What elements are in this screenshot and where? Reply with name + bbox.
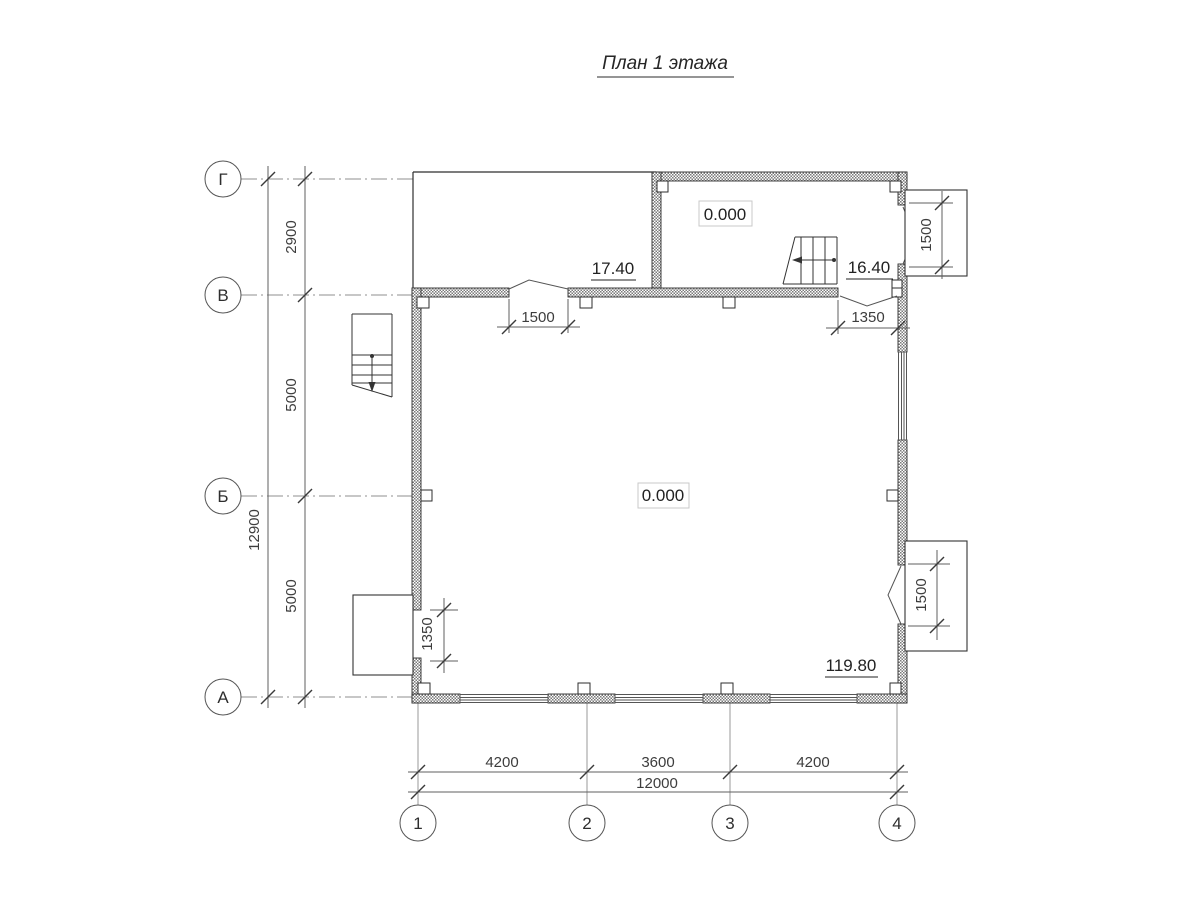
dim-text-5000-lower: 5000	[283, 579, 300, 612]
left-dimension-lines: 2900 5000 5000 12900	[246, 166, 312, 708]
row-axis-g: Г	[205, 161, 413, 197]
column-mark	[421, 490, 432, 501]
level-text: 16.40	[848, 258, 891, 277]
window-south-2	[615, 695, 703, 703]
door-axis-v-left	[509, 280, 568, 289]
column-mark	[657, 181, 668, 192]
column-mark	[890, 683, 901, 694]
dim-text-3600: 3600	[641, 754, 674, 771]
axis-label: В	[217, 286, 228, 305]
dim-text-12000: 12000	[636, 775, 678, 792]
axis-label: 1	[413, 814, 422, 833]
window-frame	[615, 695, 703, 703]
axis-label: 3	[725, 814, 734, 833]
level-label-main-room: 0.000	[638, 483, 689, 508]
level-text: 17.40	[592, 259, 635, 278]
axis-label: Б	[217, 487, 228, 506]
wall-axis-v-left	[412, 288, 509, 297]
level-label-stair: 16.40	[846, 258, 893, 279]
dim-text-12900: 12900	[246, 509, 263, 551]
column-mark	[887, 490, 898, 501]
level-label-south-east: 119.80	[825, 656, 878, 677]
column-mark	[418, 683, 430, 694]
opening-dim-west-bottom: 1350	[419, 598, 458, 673]
wall-axis-v-right	[568, 288, 838, 297]
column-mark	[580, 297, 592, 308]
row-axis-v: В	[205, 277, 412, 313]
window-south-3	[770, 695, 857, 703]
dim-text-1500: 1500	[521, 309, 554, 326]
axis-label: А	[217, 688, 229, 707]
wall-south-3	[703, 694, 770, 703]
dim-text-4200-right: 4200	[796, 754, 829, 771]
wall-south-1	[412, 694, 460, 703]
opening-dim-v-wall-left: 1500	[497, 299, 580, 334]
wall-west-upper	[412, 288, 421, 610]
dim-text-4200-left: 4200	[485, 754, 518, 771]
window-east	[899, 352, 907, 440]
bottom-dimension-lines: 4200 3600 4200 12000	[408, 754, 908, 799]
window-frame	[460, 695, 548, 703]
axis-label: Г	[218, 170, 227, 189]
porch-west	[353, 595, 413, 675]
door-jamb-mark	[892, 280, 902, 288]
stair-outdoor	[352, 314, 392, 397]
stair-direction-arrowhead	[792, 257, 802, 264]
row-axis-b: Б	[205, 478, 412, 514]
dim-text-1500: 1500	[913, 578, 930, 611]
wall-east-2	[898, 264, 907, 352]
column-mark	[723, 297, 735, 308]
column-mark	[417, 297, 429, 308]
column-mark	[578, 683, 590, 694]
dim-text-2900: 2900	[283, 220, 300, 253]
column-mark	[890, 181, 901, 192]
wall-south-4	[857, 694, 907, 703]
level-label-terrace: 17.40	[591, 259, 636, 280]
dim-text-1500: 1500	[918, 218, 935, 251]
stair-indoor	[783, 237, 837, 284]
axis-label: 4	[892, 814, 901, 833]
level-text: 119.80	[826, 656, 877, 675]
dim-text-1350: 1350	[851, 309, 884, 326]
door-jamb-mark	[892, 288, 902, 297]
axis-label: 2	[582, 814, 591, 833]
dim-text-1350: 1350	[419, 617, 436, 650]
window-south-1	[460, 695, 548, 703]
page-title: План 1 этажа	[602, 53, 728, 74]
wall-north	[652, 172, 907, 181]
stair-break-line	[783, 237, 795, 284]
window-frame	[899, 352, 907, 440]
level-label-upper-room: 0.000	[699, 201, 752, 226]
row-axis-a: А	[205, 679, 412, 715]
dim-text-5000-upper: 5000	[283, 378, 300, 411]
floor-plan-page: План 1 этажа Г В Б А	[0, 0, 1200, 900]
door-axis-v-right	[840, 296, 897, 306]
level-text: 0.000	[704, 205, 747, 224]
wall-south-2	[548, 694, 615, 703]
window-frame	[770, 695, 857, 703]
level-text: 0.000	[642, 486, 685, 505]
column-mark	[721, 683, 733, 694]
floor-plan-canvas: План 1 этажа Г В Б А	[0, 0, 1200, 900]
door-east-bottom	[888, 566, 901, 624]
